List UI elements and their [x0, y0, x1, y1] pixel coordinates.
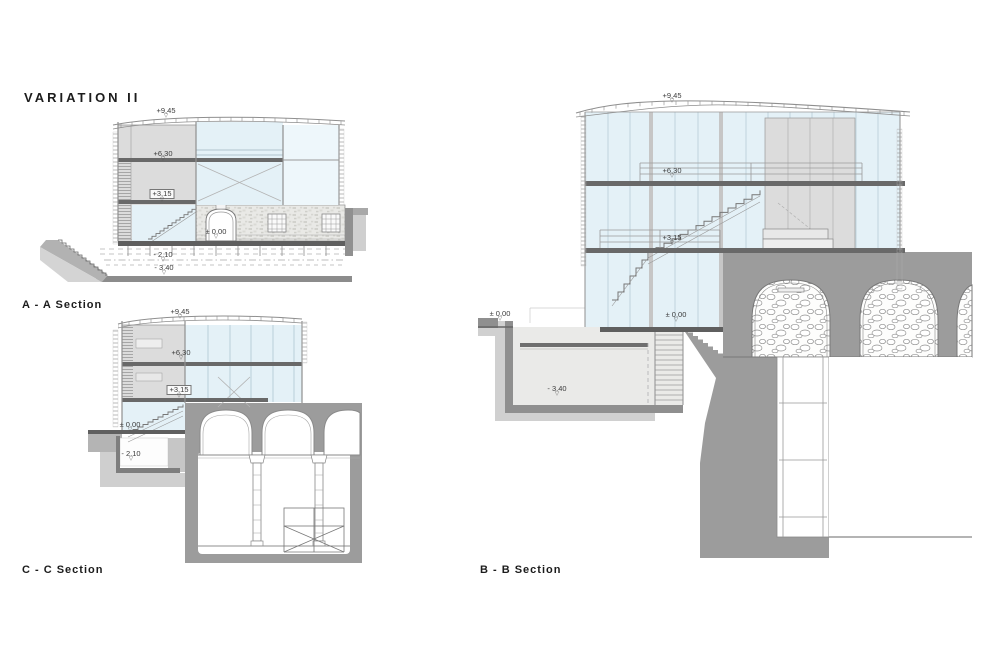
elevation-marker: - 2.10▽ — [153, 251, 172, 264]
level-triangle-icon: ▽ — [670, 241, 674, 247]
aa-entry-slope — [40, 240, 108, 282]
elevation-marker: ± 0.00▽ — [120, 421, 141, 434]
level-triangle-icon: ▽ — [670, 174, 674, 180]
elevation-marker: - 3.40▽ — [154, 264, 173, 277]
bb-sunken-pool — [478, 318, 683, 421]
level-triangle-icon: ▽ — [177, 394, 181, 400]
level-triangle-icon: ▽ — [160, 198, 164, 204]
level-triangle-icon: ▽ — [162, 271, 166, 277]
elevation-marker: +3,15▽ — [663, 234, 682, 247]
aa-section-drawing — [28, 108, 378, 288]
aa-underground — [96, 246, 352, 282]
elevation-marker: ± 0.00▽ — [206, 228, 227, 241]
elevation-marker: +9,45▽ — [663, 92, 682, 105]
elevation-marker: ± 0.00▽ — [490, 310, 511, 323]
drawing-sheet: VARIATION II — [0, 0, 1000, 667]
section-label-aa: A - A Section — [22, 299, 102, 311]
elevation-marker: +3,15▽ — [150, 189, 175, 204]
bb-ladder-shaft — [777, 357, 829, 537]
section-label-bb: B - B Section — [480, 564, 561, 576]
page-title: VARIATION II — [24, 90, 140, 105]
level-triangle-icon: ▽ — [164, 114, 168, 120]
bb-section-drawing — [478, 83, 978, 561]
level-triangle-icon: ▽ — [161, 157, 165, 163]
cc-section-drawing — [58, 305, 368, 567]
level-triangle-icon: ▽ — [214, 235, 218, 241]
level-triangle-icon: ▽ — [555, 392, 559, 398]
level-triangle-icon: ▽ — [498, 317, 502, 323]
aa-window — [322, 214, 340, 232]
bb-cistern-interior — [829, 357, 972, 537]
elevation-marker: +3,15▽ — [167, 385, 192, 400]
elevation-marker: - 2.10▽ — [121, 450, 140, 463]
level-triangle-icon: ▽ — [670, 99, 674, 105]
cc-cistern-interior — [198, 410, 360, 554]
section-label-cc: C - C Section — [22, 564, 103, 576]
elevation-marker: +9,45▽ — [157, 107, 176, 120]
level-triangle-icon: ▽ — [128, 428, 132, 434]
elevation-marker: ± 0.00▽ — [666, 311, 687, 324]
elevation-marker: +6,30▽ — [172, 349, 191, 362]
level-triangle-icon: ▽ — [129, 457, 133, 463]
bb-guide-lines — [530, 308, 585, 323]
aa-window — [268, 214, 286, 232]
aa-right-ground — [345, 208, 368, 256]
level-triangle-icon: ▽ — [179, 356, 183, 362]
level-triangle-icon: ▽ — [178, 315, 182, 321]
elevation-marker: +9,45▽ — [171, 308, 190, 321]
elevation-marker: +6,30▽ — [154, 150, 173, 163]
elevation-marker: - 3.40▽ — [547, 385, 566, 398]
level-triangle-icon: ▽ — [674, 318, 678, 324]
elevation-marker: +6,30▽ — [663, 167, 682, 180]
